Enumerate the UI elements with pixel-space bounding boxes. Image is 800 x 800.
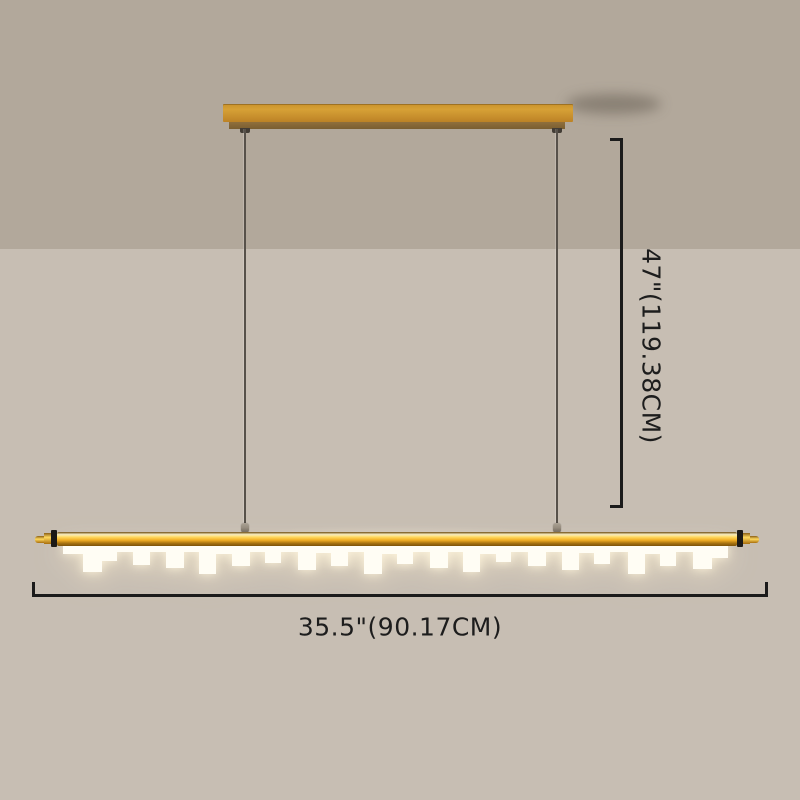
width-dimension-line: [32, 594, 768, 597]
gold-light-tube: [57, 532, 737, 546]
end-cap-nub-right: [750, 536, 759, 543]
width-dimension-tick-left: [32, 582, 35, 597]
height-dimension-tick-top: [610, 138, 623, 141]
width-dimension-label: 35.5"(90.17CM): [298, 613, 502, 642]
suspension-wire-left: [244, 129, 246, 533]
height-dimension-tick-bottom: [610, 505, 623, 508]
width-dimension-tick-right: [765, 582, 768, 597]
ceiling-canopy-underside: [229, 122, 565, 129]
height-dimension-line: [620, 138, 623, 508]
skyline-diffuser-panel: [63, 544, 728, 580]
skyline-silhouette: [63, 544, 728, 574]
height-dimension-label: 47"(119.38CM): [637, 248, 666, 444]
canopy-wall-shadow: [566, 94, 661, 114]
wall-lower: [0, 249, 800, 800]
end-cap-nub-left: [35, 536, 44, 543]
end-cap-block-right: [743, 533, 750, 544]
product-dimension-image: { "scene": { "description_labels": { "he…: [0, 0, 800, 800]
ceiling-canopy-bar: [223, 104, 573, 122]
end-cap-block-left: [44, 533, 51, 544]
end-cap-ring-left: [51, 530, 57, 547]
suspension-wire-right: [556, 129, 558, 533]
